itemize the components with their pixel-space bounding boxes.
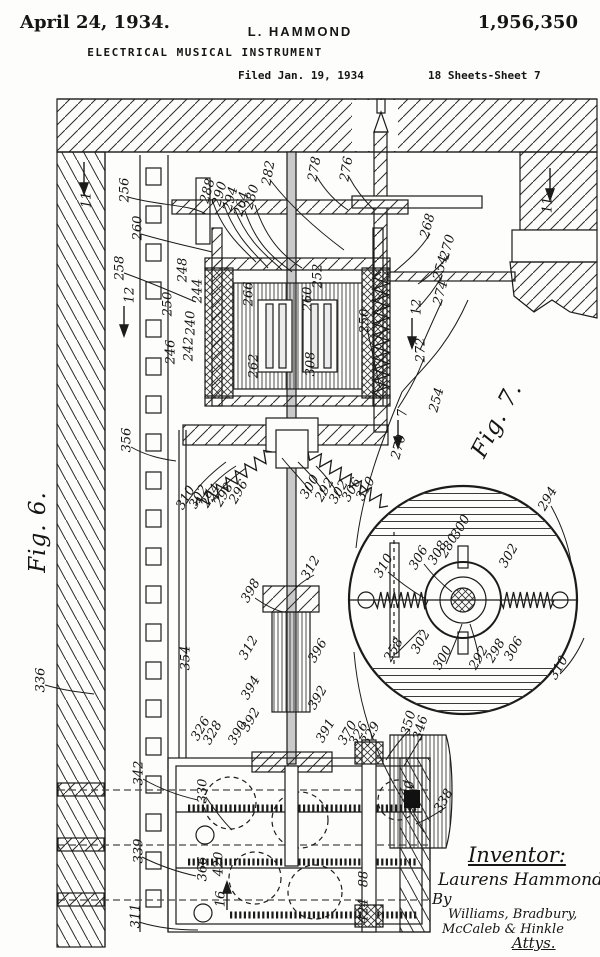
inventor-heading: Inventor: — [468, 843, 566, 867]
comb-tab — [146, 662, 161, 679]
comb-tab — [146, 358, 161, 375]
inventor-signature: Laurens Hammond — [438, 870, 600, 890]
comb-tab — [146, 320, 161, 337]
comb-tab — [146, 244, 161, 261]
gearbox — [58, 740, 430, 932]
comb-tab — [146, 168, 161, 185]
comb-tab — [146, 396, 161, 413]
comb-tab — [146, 548, 161, 565]
fig7-detail-view — [346, 486, 580, 714]
comb-tab — [146, 700, 161, 717]
comb-tab — [146, 814, 161, 831]
comb-tab — [146, 434, 161, 451]
tone-wheel-comb — [140, 155, 168, 932]
by-label: By — [432, 890, 452, 908]
comb-tab — [146, 890, 161, 907]
lower-shaft-assembly — [179, 430, 332, 772]
motor-assembly — [205, 228, 390, 406]
comb-tab — [146, 206, 161, 223]
attys-label: Attys. — [512, 934, 556, 952]
bearing-plate — [183, 418, 388, 468]
comb-tab — [146, 624, 161, 641]
comb-tab — [146, 586, 161, 603]
comb-tab — [146, 510, 161, 527]
fig6-fig7-drawing — [0, 0, 600, 957]
comb-tab — [146, 472, 161, 489]
patent-sheet: April 24, 1934. L. HAMMOND 1,956,350 ELE… — [0, 0, 600, 957]
attorney-signature-line1: Williams, Bradbury, — [448, 907, 577, 922]
comb-tab — [146, 738, 161, 755]
